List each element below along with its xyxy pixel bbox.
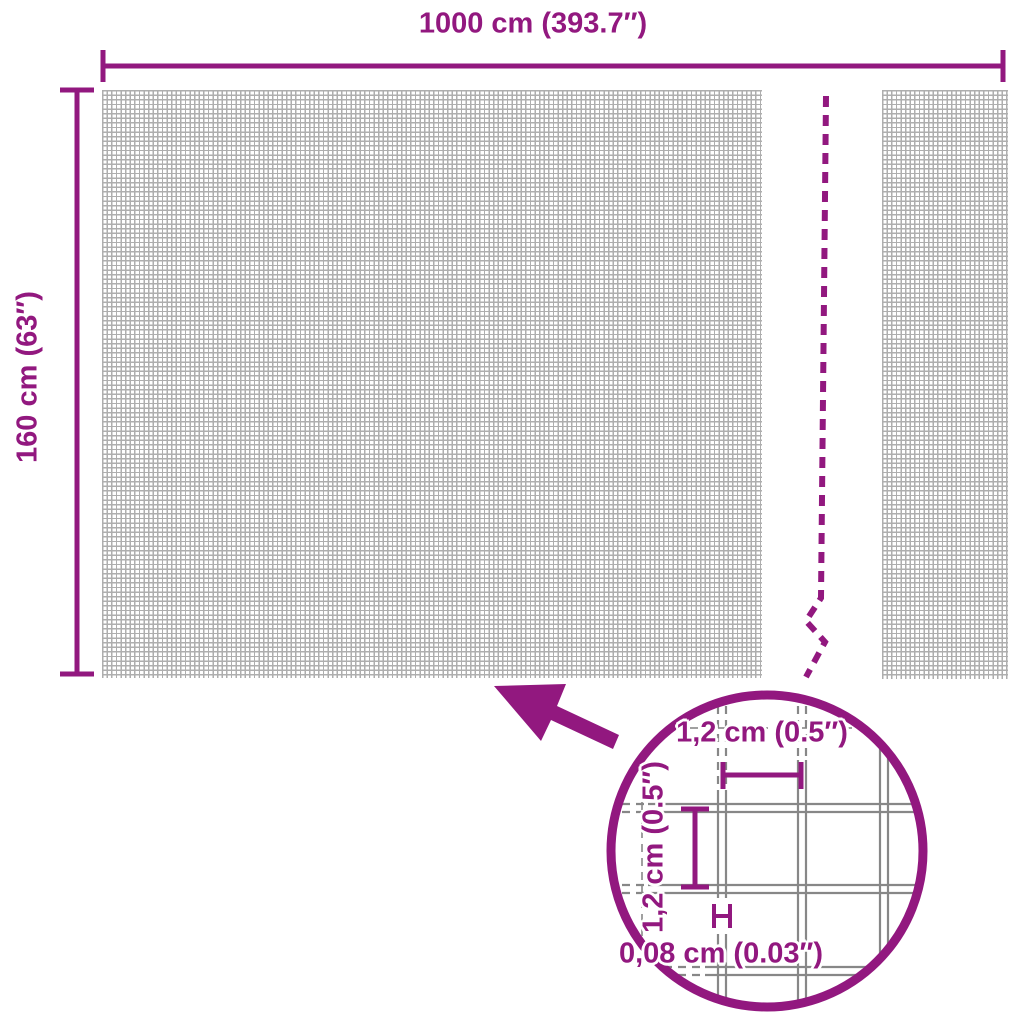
detail-horizontal-dimension [723, 762, 801, 789]
top-dimension-line [103, 50, 1003, 82]
detail-vertical-dimension [681, 809, 709, 887]
detail-horizontal-label: 1,2 cm (0.5″) [676, 719, 848, 748]
break-line-icon [806, 96, 826, 677]
top-dimension-label: 1000 cm (393.7″) [419, 10, 647, 39]
detail-thickness-label: 0,08 cm (0.03″) [619, 940, 823, 969]
diagram-graphics [0, 0, 1024, 1024]
detail-thickness-dimension [704, 898, 744, 934]
left-dimension-label: 160 cm (63″) [14, 291, 43, 463]
zoom-arrow-icon [494, 684, 619, 749]
product-dimension-diagram: 1000 cm (393.7″) 160 cm (63″) 1,2 cm (0.… [0, 0, 1024, 1024]
detail-vertical-label: 1,2 cm (0.5″) [640, 761, 669, 933]
left-dimension-line [60, 90, 94, 674]
